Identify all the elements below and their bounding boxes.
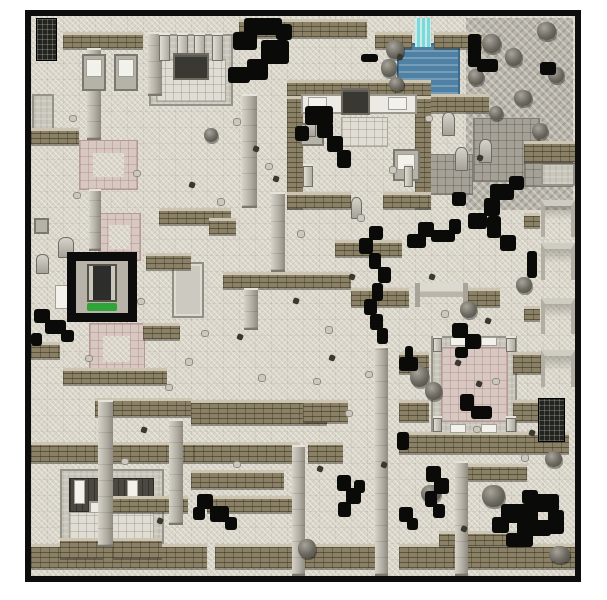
black-chasm-crack	[500, 235, 516, 251]
black-chasm-crack	[361, 54, 379, 62]
white-inset	[74, 480, 85, 504]
ornate-arch-pillar	[541, 350, 575, 387]
brick-wall	[194, 442, 300, 463]
boulder	[298, 539, 316, 558]
black-chasm-crack	[228, 67, 250, 83]
black-chasm-crack	[407, 234, 426, 248]
black-chasm-crack	[477, 59, 498, 72]
stone-pillar-column	[89, 189, 102, 251]
white-inset	[450, 424, 466, 433]
small-stone	[217, 198, 225, 205]
small-stone	[425, 115, 433, 122]
white-inset	[481, 337, 497, 346]
black-chasm-crack	[535, 494, 559, 512]
black-chasm-crack	[548, 510, 564, 534]
dark-debris	[140, 426, 148, 434]
brick-wall	[146, 253, 191, 269]
small-stone	[69, 115, 77, 122]
brick-wall	[524, 141, 575, 162]
small-stone	[201, 330, 209, 337]
dark-debris	[484, 317, 492, 325]
black-chasm-crack	[452, 192, 466, 206]
brick-wall	[463, 464, 527, 480]
small-stone	[345, 410, 353, 417]
brick-wall	[524, 213, 540, 227]
stone-pillar-column	[98, 400, 112, 547]
ornate-arch-pillar	[541, 298, 575, 335]
boulder	[505, 48, 523, 66]
white-inset	[450, 337, 466, 346]
boulder	[514, 90, 532, 106]
checkered-floor	[341, 117, 387, 147]
boulder	[389, 77, 403, 91]
brick-wall	[143, 323, 180, 339]
dark-grate	[36, 18, 57, 61]
small-pillar-statue	[212, 35, 223, 61]
waterfall	[415, 18, 431, 47]
small-stone	[137, 298, 145, 305]
boulder	[489, 106, 503, 120]
dark-debris	[292, 297, 300, 305]
small-stone	[521, 454, 529, 461]
boulder	[460, 301, 478, 319]
map-canvas[interactable]	[31, 16, 575, 576]
small-stone	[258, 374, 266, 381]
floor	[109, 225, 130, 249]
boulder	[381, 59, 397, 77]
black-chasm-crack	[193, 507, 206, 520]
dark-altar	[341, 88, 370, 115]
brick-wall	[308, 442, 343, 463]
small-pillar-statue	[506, 418, 516, 432]
small-stone	[313, 378, 321, 385]
small-stone	[233, 461, 241, 468]
brick-wall	[303, 400, 348, 422]
dark-debris	[316, 465, 324, 473]
small-stone	[441, 310, 449, 317]
black-chasm-crack	[377, 328, 388, 344]
brick-wall	[513, 352, 543, 373]
dark-debris	[252, 145, 260, 153]
small-stone	[325, 326, 333, 333]
stone-pillar-column	[271, 192, 285, 272]
white-inset	[388, 97, 407, 110]
dark-grate	[538, 398, 565, 441]
small-pillar-statue	[506, 338, 516, 352]
gravestone	[36, 254, 49, 273]
stone-pillar-column	[244, 288, 258, 330]
black-chasm-crack	[397, 432, 408, 450]
small-stone	[73, 192, 81, 199]
small-stone	[365, 371, 373, 378]
black-chasm-crack	[61, 330, 74, 343]
black-chasm-crack	[509, 176, 523, 190]
brick-wall	[223, 272, 351, 288]
dark-debris	[188, 181, 196, 189]
door-tile	[87, 264, 117, 302]
black-chasm-crack	[247, 59, 268, 80]
black-chasm-crack	[492, 517, 510, 533]
stone-slab	[172, 262, 204, 318]
gravestone	[455, 147, 468, 171]
black-chasm-crack	[295, 126, 309, 140]
black-chasm-crack	[225, 517, 238, 530]
small-stone	[357, 214, 365, 221]
black-chasm-crack	[354, 480, 365, 493]
black-chasm-crack	[455, 347, 468, 358]
gravestone	[442, 112, 455, 136]
black-chasm-crack	[378, 267, 391, 283]
small-stone	[297, 230, 305, 237]
boulder	[425, 382, 443, 400]
black-chasm-crack	[433, 504, 446, 518]
small-pillar-statue	[433, 418, 443, 432]
dark-debris	[428, 273, 436, 281]
boulder	[549, 546, 570, 564]
black-chasm-crack	[233, 32, 257, 50]
brick-wall	[63, 32, 143, 48]
small-stone	[165, 384, 173, 391]
small-stone	[389, 166, 397, 173]
black-chasm-crack	[449, 219, 462, 233]
selection-cursor[interactable]	[67, 252, 137, 322]
small-pillar-statue	[433, 338, 443, 352]
small-stone	[473, 426, 481, 433]
black-chasm-crack	[359, 238, 373, 254]
stone-pillar-column	[169, 419, 183, 525]
gate-bridge	[415, 283, 468, 307]
black-chasm-crack	[364, 299, 377, 315]
small-pillar-statue	[404, 166, 414, 187]
black-chasm-crack	[506, 533, 533, 547]
brick-wall	[113, 538, 163, 559]
boulder	[204, 128, 218, 142]
ornate-arch-pillar	[541, 243, 575, 280]
stone-pillar-column	[455, 461, 468, 576]
brick-wall	[399, 400, 429, 421]
stone-box	[34, 218, 48, 234]
small-stone	[233, 118, 241, 125]
black-chasm-crack	[471, 406, 492, 419]
floor	[93, 153, 123, 177]
brick-wall	[191, 470, 284, 488]
boulder	[537, 22, 556, 40]
green-marker	[87, 303, 117, 311]
black-chasm-crack	[407, 518, 418, 529]
brick-wall	[31, 128, 79, 144]
brick-wall	[524, 306, 540, 320]
brick-wall	[383, 192, 431, 208]
black-chasm-crack	[337, 150, 351, 168]
dark-debris	[348, 273, 356, 281]
black-chasm-crack	[540, 62, 556, 75]
black-chasm-crack	[338, 502, 351, 516]
dark-debris	[236, 333, 244, 341]
white-inset	[118, 59, 134, 77]
floor	[103, 336, 130, 362]
screenshot-canvas	[0, 0, 607, 600]
small-stone	[133, 170, 141, 177]
black-chasm-crack	[527, 251, 537, 278]
brick-wall	[63, 368, 167, 384]
black-chasm-crack	[487, 216, 501, 238]
black-chasm-crack	[31, 333, 42, 346]
boulder	[532, 123, 548, 139]
white-inset	[86, 59, 102, 77]
boulder	[516, 277, 532, 293]
small-stone	[492, 378, 500, 385]
brick-wall	[287, 192, 351, 208]
black-chasm-crack	[276, 24, 292, 40]
small-stone	[185, 358, 193, 365]
brick-wall	[209, 218, 236, 234]
boulder	[482, 34, 501, 53]
black-chasm-crack	[522, 490, 538, 504]
small-pillar-statue	[159, 35, 170, 61]
map-frame	[25, 10, 581, 582]
black-chasm-crack	[465, 334, 481, 348]
brick-wall	[60, 538, 103, 559]
white-inset	[481, 424, 497, 433]
dark-debris	[272, 175, 280, 183]
small-stone	[121, 458, 129, 465]
small-pillar-statue	[303, 166, 313, 187]
dark-altar	[173, 53, 208, 80]
small-stone	[265, 163, 273, 170]
black-chasm-crack	[468, 213, 487, 229]
stone-platform	[541, 163, 575, 185]
black-chasm-crack	[372, 283, 383, 301]
ornate-arch-pillar	[541, 200, 575, 237]
black-chasm-crack	[405, 346, 413, 360]
dark-debris	[328, 354, 336, 362]
boulder	[545, 451, 563, 467]
